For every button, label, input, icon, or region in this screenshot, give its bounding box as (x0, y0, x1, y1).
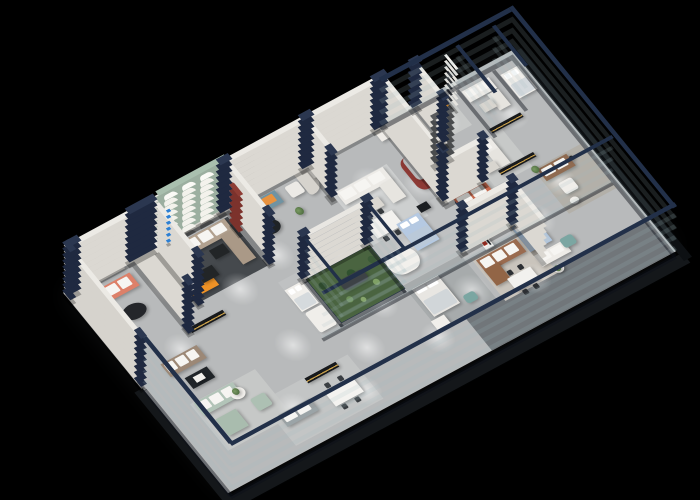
person-figure (446, 71, 453, 78)
sofa-cushion (537, 251, 552, 263)
sofa-cushion (465, 87, 479, 98)
sofa-cushion (549, 244, 564, 256)
showroom-render (0, 0, 700, 500)
bed-pillow (514, 224, 525, 232)
bed-pillow (511, 69, 520, 76)
blue-arch-logo (166, 208, 172, 212)
sofa-cushion (237, 207, 253, 219)
bed-pillow (399, 221, 410, 229)
bed-pillow (426, 279, 439, 289)
sofa-cushion (339, 186, 358, 200)
sofa-cushion (353, 178, 372, 192)
display-board (444, 54, 459, 70)
sofa-cushion (465, 148, 480, 160)
bed-pillow (408, 216, 419, 224)
navy-cap-closet (125, 194, 158, 215)
bed-pillow (523, 219, 534, 227)
bed-pillow (415, 285, 428, 295)
